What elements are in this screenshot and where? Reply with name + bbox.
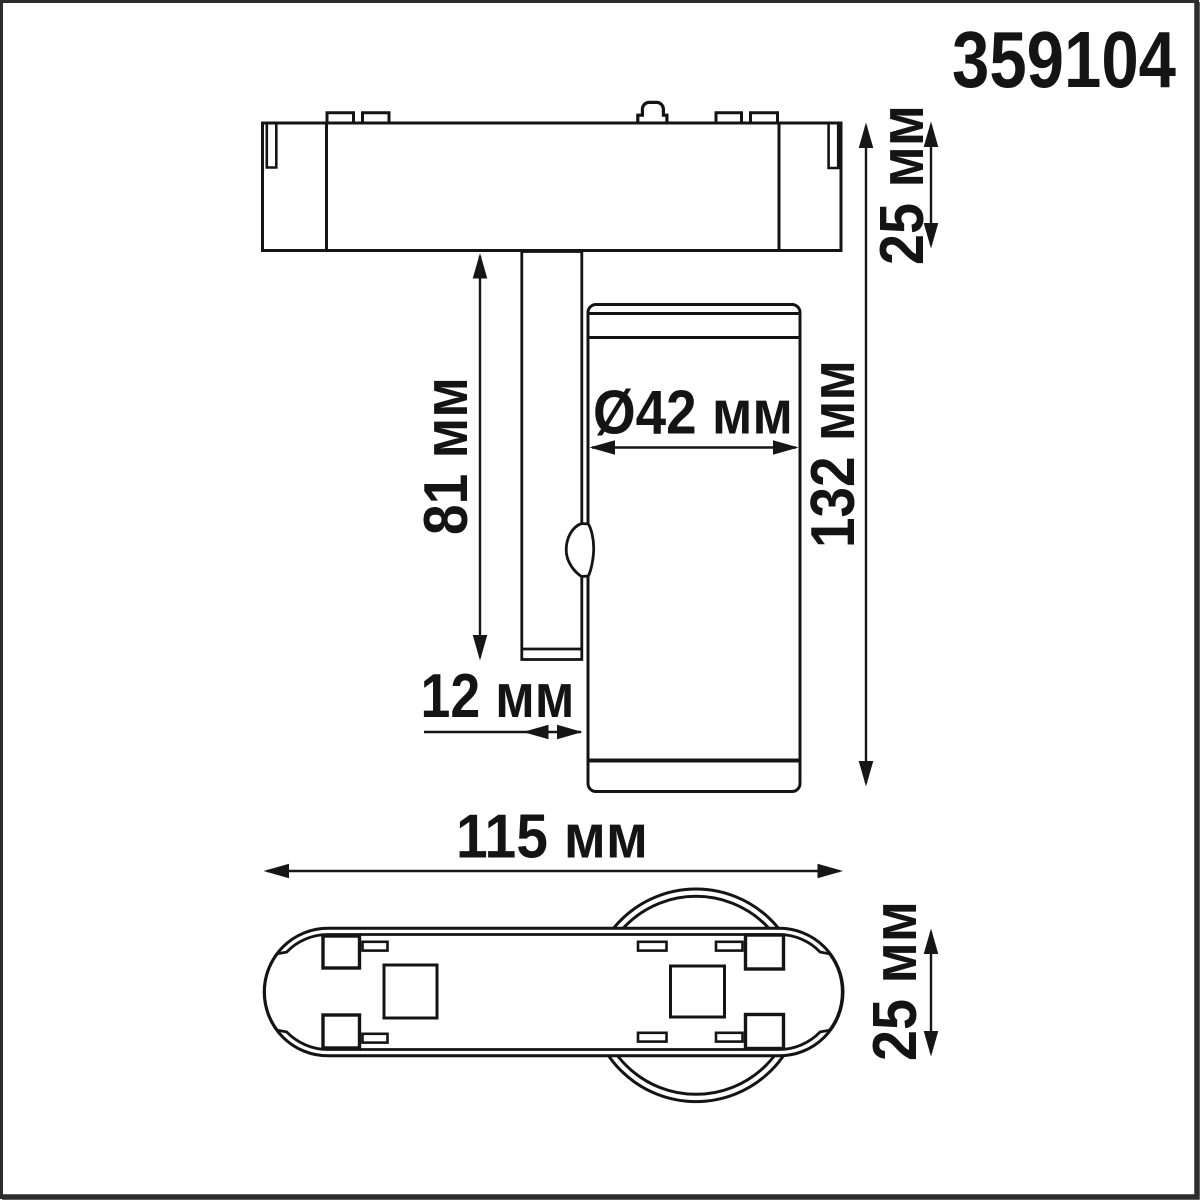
- svg-text:25 мм: 25 мм: [861, 901, 930, 1061]
- svg-text:Ø42 мм: Ø42 мм: [593, 379, 793, 448]
- svg-text:81 мм: 81 мм: [412, 377, 481, 535]
- svg-text:359104: 359104: [952, 15, 1176, 104]
- svg-text:132 мм: 132 мм: [799, 360, 868, 548]
- svg-text:25 мм: 25 мм: [868, 105, 937, 265]
- svg-text:115 мм: 115 мм: [456, 803, 648, 872]
- svg-text:12 мм: 12 мм: [421, 662, 575, 731]
